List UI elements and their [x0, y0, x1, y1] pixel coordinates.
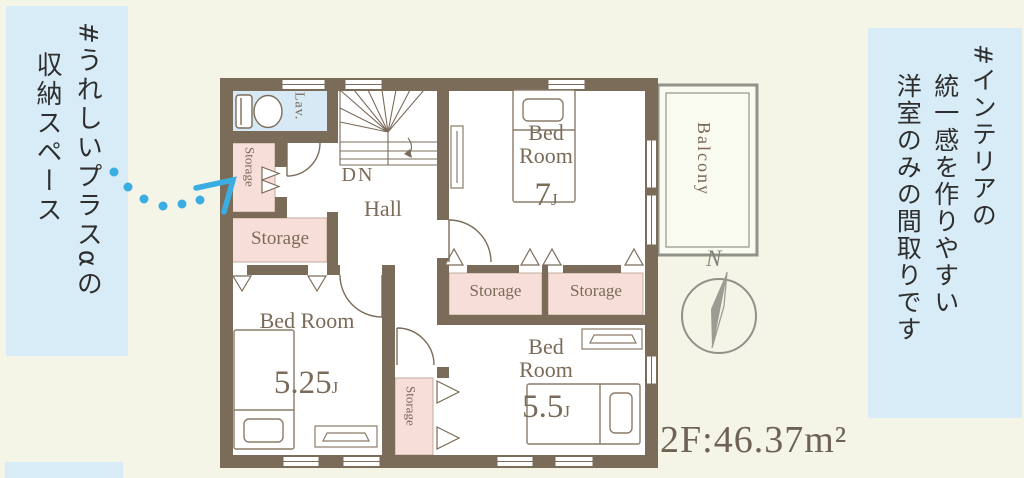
room-size-unit: J: [563, 402, 570, 421]
cabinet-icon: [451, 126, 463, 188]
window: [555, 457, 593, 467]
room-label-storage-b: Storage: [549, 282, 643, 300]
room-size-bedroom7: 7J: [500, 178, 592, 213]
room-label-bedroom7: Bed Room: [500, 121, 592, 167]
room-label-storage-upper: Storage: [243, 147, 257, 211]
compass-icon: [682, 272, 756, 353]
room-label-storage-a: Storage: [449, 282, 542, 300]
room-label-storage-left: Storage: [234, 229, 326, 249]
window: [548, 80, 585, 90]
room-size-value: 5.5: [522, 389, 563, 425]
balcony-door: [647, 140, 657, 188]
window: [647, 356, 657, 384]
compass-north-label: N: [706, 247, 721, 271]
room-size-bedroom55: 5.5J: [498, 390, 594, 425]
room-size-unit: J: [551, 190, 558, 209]
room-size-value: 7: [534, 177, 551, 213]
room-size-bedroom525: 5.25J: [250, 366, 362, 401]
stairs-down-label: DN: [334, 165, 382, 186]
window: [282, 80, 325, 90]
balcony-door: [647, 195, 657, 245]
floorplan-page: #うれしいプラスαの 収納スペース #インテリアの 統一感を作りやすい 洋室のみ…: [0, 0, 1024, 478]
annotation-arrow: [110, 168, 234, 213]
room-size-value: 5.25: [274, 365, 332, 401]
window: [343, 457, 380, 467]
window: [497, 457, 533, 467]
room-label-storage-lower: Storage: [404, 386, 418, 448]
floor-area-label: 2F:46.37m²: [660, 421, 847, 461]
room-label-hall: Hall: [352, 197, 414, 220]
room-label-balcony: Balcony: [694, 122, 713, 218]
room-size-unit: J: [332, 378, 339, 397]
room-label-bedroom525: Bed Room: [258, 309, 356, 332]
desk-icon-bed525: [315, 426, 377, 447]
room-label-lavatory: Lav.: [291, 92, 306, 136]
window: [345, 80, 382, 90]
toilet-icon: [236, 95, 282, 128]
room-label-bedroom55: Bed Room: [500, 335, 592, 381]
window: [283, 457, 319, 467]
